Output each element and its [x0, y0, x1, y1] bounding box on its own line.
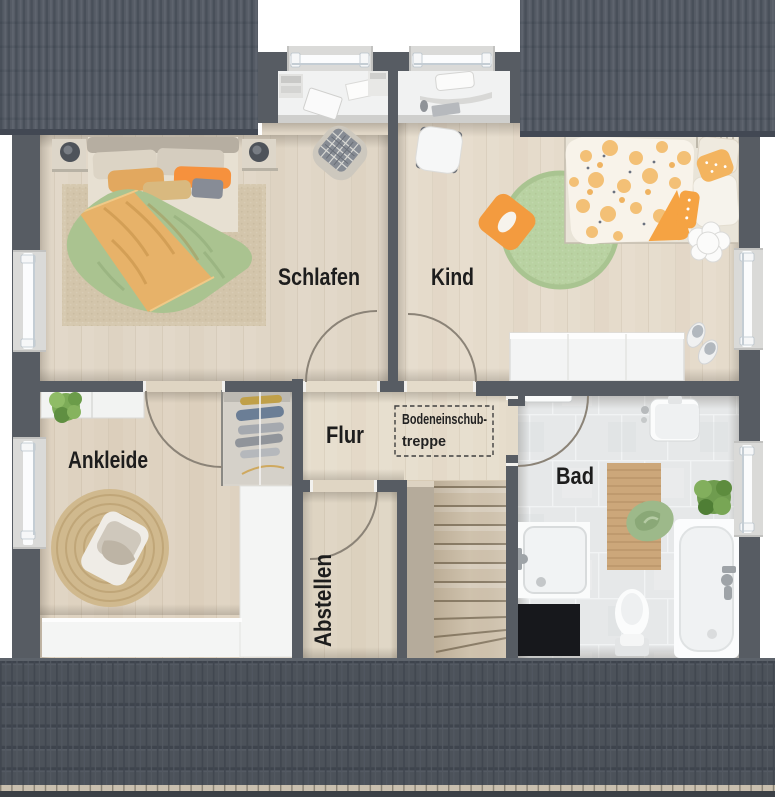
svg-text:Abstellen: Abstellen: [310, 554, 337, 647]
svg-text:treppe: treppe: [402, 433, 446, 450]
svg-text:Bodeneinschub-: Bodeneinschub-: [402, 411, 487, 428]
svg-text:Flur: Flur: [326, 422, 364, 449]
svg-text:Ankleide: Ankleide: [68, 447, 148, 474]
svg-text:Kind: Kind: [431, 264, 474, 291]
svg-text:Bad: Bad: [556, 463, 594, 490]
svg-text:Schlafen: Schlafen: [278, 264, 360, 291]
